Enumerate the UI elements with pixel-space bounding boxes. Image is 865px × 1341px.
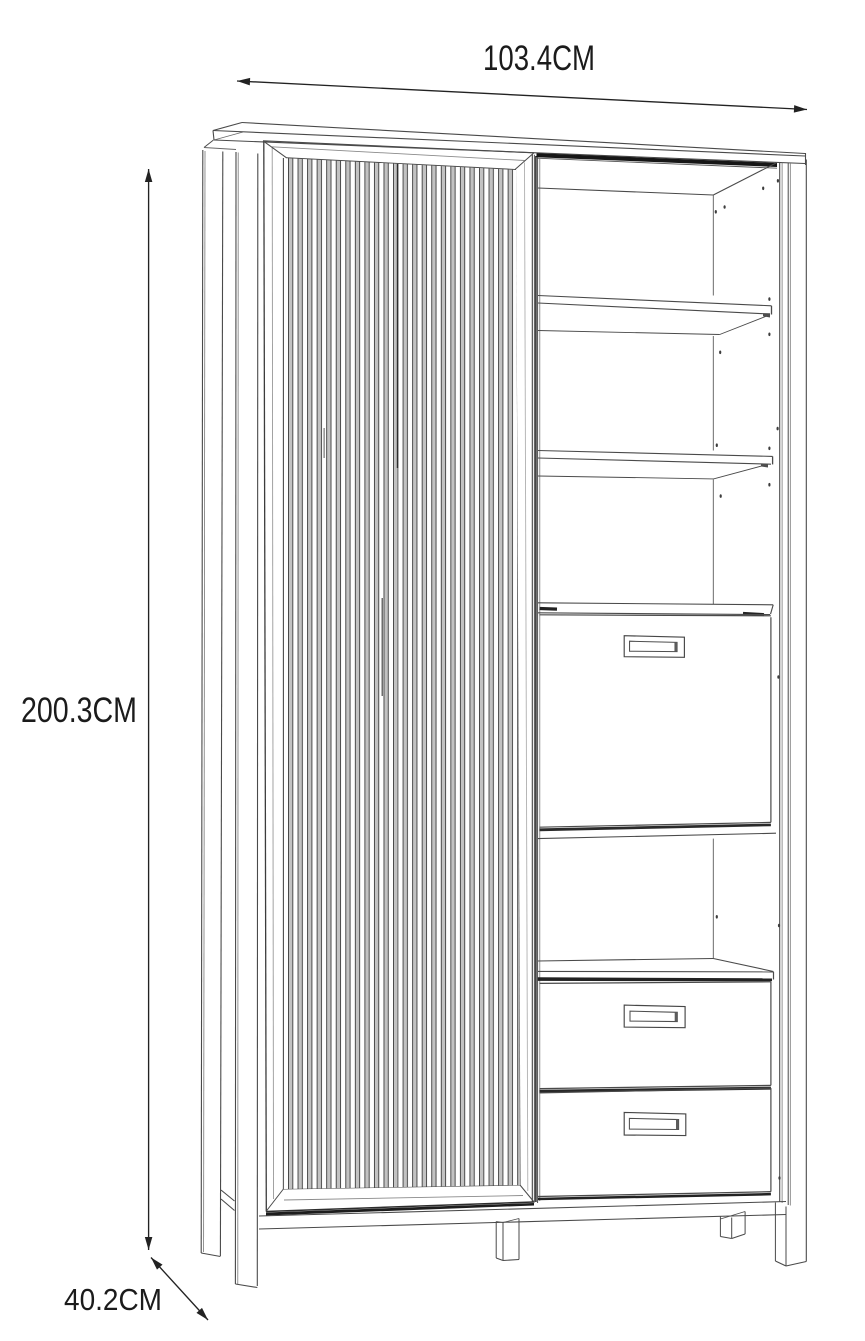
svg-text:40.2CM: 40.2CM	[64, 1282, 162, 1317]
svg-text:103.4CM: 103.4CM	[483, 39, 595, 78]
svg-text:200.3CM: 200.3CM	[21, 691, 137, 730]
